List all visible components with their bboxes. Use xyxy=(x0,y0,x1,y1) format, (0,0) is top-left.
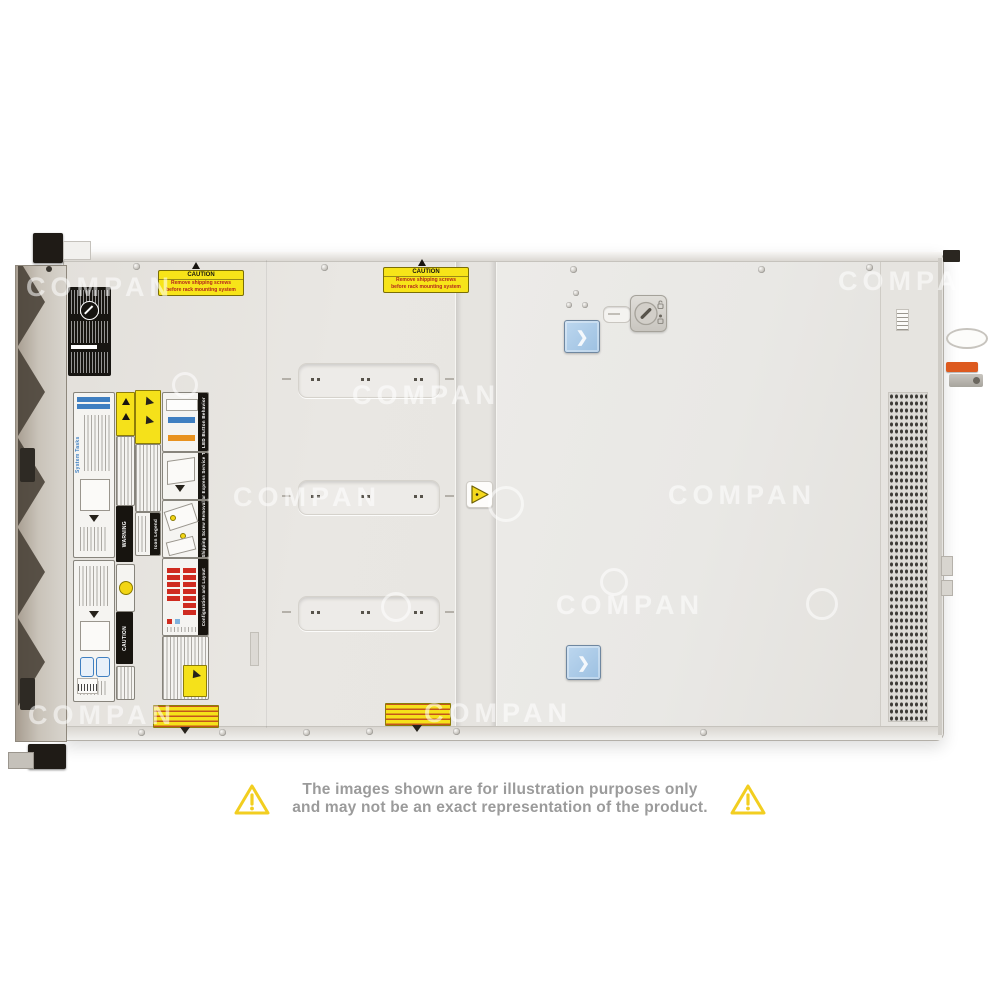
icon-legend-label: Icon Legend xyxy=(135,512,161,556)
shipping-screw-title: Shipping Screw Removal xyxy=(201,501,206,557)
regulatory-fine-print xyxy=(71,321,108,343)
chassis-top-edge xyxy=(63,252,942,262)
service-tag-header: Rear Express Service Tag xyxy=(198,453,208,499)
arrow-icon xyxy=(89,611,99,618)
latch-slide-indicator xyxy=(603,306,631,323)
label-pointer-icon xyxy=(418,259,426,266)
task-diagram xyxy=(80,479,110,511)
label-pointer-icon xyxy=(412,725,422,732)
lock-icon xyxy=(659,315,662,318)
tag-diagram xyxy=(167,457,195,485)
cover-release-latch: ❯ xyxy=(566,645,601,680)
arrow-icon xyxy=(175,485,185,492)
caution-shipping-label: CAUTION Remove shipping screws before ra… xyxy=(383,267,469,293)
label-pointer-icon xyxy=(180,727,190,734)
front-drive-strip xyxy=(15,265,67,742)
label-pointer-icon xyxy=(192,262,200,269)
arrow-icon xyxy=(89,515,99,522)
warning-triangle-icon xyxy=(122,413,130,420)
system-tasks-header-bar2 xyxy=(77,404,110,409)
caution-strip-title: CAUTION xyxy=(122,626,128,651)
label-fine-print xyxy=(80,527,108,551)
legend-icons xyxy=(138,516,148,552)
caution-text-line1: Remove shipping screws xyxy=(384,277,468,284)
regulatory-logo-icon xyxy=(80,301,99,320)
rear-tab xyxy=(943,250,960,262)
configuration-and-layout-label: Configuration and Layout xyxy=(162,558,209,636)
rear-express-service-tag-label: Rear Express Service Tag xyxy=(162,452,209,500)
watermark-text: COMPAN xyxy=(26,272,174,303)
rear-info-label xyxy=(896,309,909,331)
warning-triangle-icon xyxy=(122,398,130,405)
label-fine-print xyxy=(135,444,161,512)
drive-handle-edge xyxy=(18,528,45,616)
led-blue-bar xyxy=(168,417,195,423)
screw-icon xyxy=(453,728,460,735)
arrow-icon xyxy=(142,397,154,409)
icon-legend-header: Icon Legend xyxy=(150,513,160,555)
screw-icon xyxy=(570,266,577,273)
front-latch-block xyxy=(20,448,35,482)
icon-legend-title: Icon Legend xyxy=(153,519,158,549)
watermark-logo-icon xyxy=(600,568,628,596)
led-orange-bar xyxy=(168,435,195,441)
service-tag-title: Rear Express Service Tag xyxy=(201,453,206,499)
watermark-text: COMPAN xyxy=(838,266,986,297)
regulatory-fine-print xyxy=(71,352,108,373)
watermark-logo-icon xyxy=(172,372,198,398)
unlock-icon xyxy=(658,304,663,309)
cover-recess xyxy=(298,596,440,631)
legend-blue-dot xyxy=(175,619,180,624)
service-time-label xyxy=(116,564,135,612)
arrow-icon xyxy=(189,670,201,682)
caution-text-line2: before rack mounting system xyxy=(384,284,468,291)
clock-badge-icon xyxy=(119,581,133,595)
screw-icon xyxy=(566,302,572,308)
watermark-logo-icon xyxy=(806,588,838,620)
warning-title: WARNING xyxy=(122,521,128,547)
label-fine-print-strip xyxy=(116,436,135,506)
watermark-logo-icon xyxy=(488,486,524,522)
barcode-label xyxy=(77,678,98,694)
product-photo-server-top-view: CAUTION Remove shipping screws before ra… xyxy=(0,0,1000,1000)
step-diagram xyxy=(80,621,110,651)
warning-arrow-label xyxy=(135,390,161,444)
rack-ear-top xyxy=(33,233,63,263)
disclaimer-line1: The images shown are for illustration pu… xyxy=(292,781,708,799)
system-tasks-title: System Tasks xyxy=(75,413,81,473)
label-fine-print xyxy=(162,636,209,700)
led-button-behavior-label: LED Button Behavior xyxy=(162,392,209,452)
blue-clip-diagram xyxy=(80,657,94,677)
label-fine-print xyxy=(167,627,196,632)
screw-icon xyxy=(366,728,373,735)
cover-keylock xyxy=(630,295,667,332)
screw-icon xyxy=(219,729,226,736)
screw-icon xyxy=(700,729,707,736)
watermark-text: COMPAN xyxy=(556,590,704,621)
rail-diagram xyxy=(166,536,197,556)
label-fine-print xyxy=(84,415,110,471)
shipping-screw-removal-label: Shipping Screw Removal xyxy=(162,500,209,558)
screw-icon xyxy=(321,264,328,271)
rail-diagram xyxy=(164,503,199,531)
psu-vent-grid xyxy=(888,392,928,722)
shipping-screw-header: Shipping Screw Removal xyxy=(198,501,208,557)
screw-highlight xyxy=(170,515,176,521)
watermark-text: COMPAN xyxy=(233,482,381,513)
keylock-icon xyxy=(631,296,666,331)
configuration-title: Configuration and Layout xyxy=(201,568,206,626)
screw-icon xyxy=(758,266,765,273)
configuration-header: Configuration and Layout xyxy=(198,559,208,635)
watermark-text: COMPAN xyxy=(352,380,500,411)
watermark-text: COMPAN xyxy=(424,698,572,729)
arrow-icon xyxy=(142,416,154,428)
psu-handle-ring xyxy=(946,328,988,349)
warning-strip-label: WARNING xyxy=(116,506,133,562)
drive-bay-grid xyxy=(167,567,180,601)
regulatory-barcode xyxy=(71,345,97,349)
screw-icon xyxy=(303,729,310,736)
chevron-right-icon: ❯ xyxy=(576,328,589,346)
system-tasks-label: System Tasks xyxy=(73,392,115,558)
caution-strip-label: CAUTION xyxy=(116,612,133,664)
screw-icon xyxy=(582,302,588,308)
cover-release-latch: ❯ xyxy=(564,320,600,353)
legend-red-dot xyxy=(167,619,172,624)
rear-bump xyxy=(941,580,953,596)
label-fine-print-strip xyxy=(116,666,135,700)
warning-triangle-icon xyxy=(234,783,270,816)
rear-orange-clip xyxy=(946,362,978,372)
warning-arrow-label-small xyxy=(183,665,207,697)
caution-title: CAUTION xyxy=(384,268,468,277)
rear-edge-line xyxy=(938,258,942,735)
disclaimer-text: The images shown are for illustration pu… xyxy=(292,781,708,817)
screw-icon xyxy=(573,290,579,296)
screw-icon xyxy=(133,263,140,270)
front-rail-bottom xyxy=(8,752,34,769)
front-corner-block-top xyxy=(63,241,91,260)
watermark-logo-icon xyxy=(381,592,411,622)
part-number-label xyxy=(250,632,259,666)
drive-handle-edge xyxy=(18,348,45,436)
disclaimer-bar: The images shown are for illustration pu… xyxy=(0,781,1000,817)
label-fine-print xyxy=(79,566,109,606)
blue-clip-diagram xyxy=(96,657,110,677)
system-tasks-header-bar xyxy=(77,397,110,402)
watermark-text: COMPAN xyxy=(28,700,176,731)
led-label-title: LED Button Behavior xyxy=(201,397,206,448)
drive-bay-grid xyxy=(183,567,196,615)
warning-triangle-icon xyxy=(730,783,766,816)
warning-stripe-label xyxy=(116,392,135,436)
watermark-text: COMPAN xyxy=(668,480,816,511)
rear-bump xyxy=(941,556,953,576)
rear-metal-latch xyxy=(949,374,983,387)
disclaimer-line2: and may not be an exact representation o… xyxy=(292,799,708,817)
led-label-header: LED Button Behavior xyxy=(198,393,208,451)
chevron-right-icon: ❯ xyxy=(577,654,590,672)
